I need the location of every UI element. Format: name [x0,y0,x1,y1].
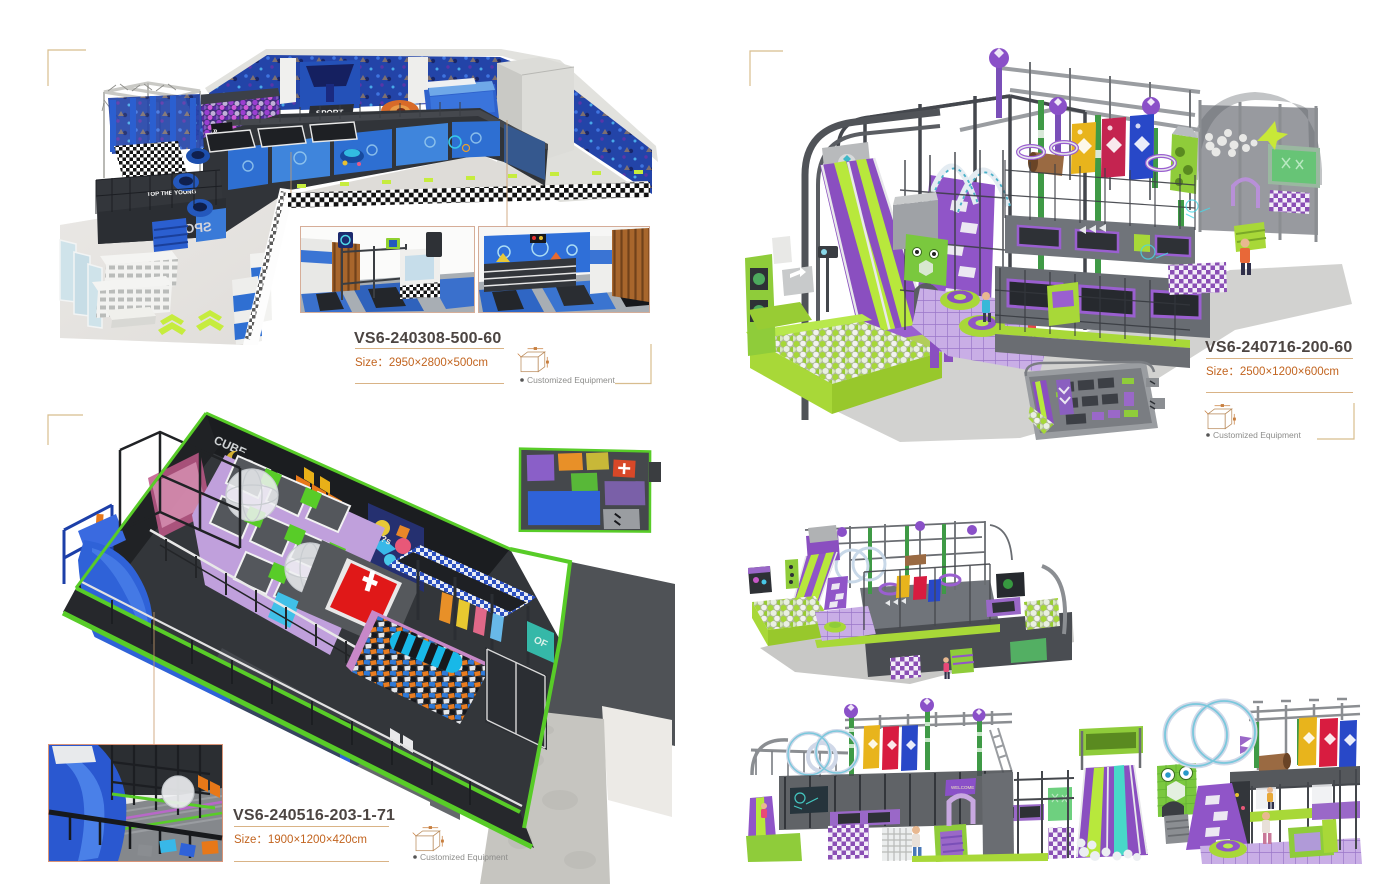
svg-text:Customized Equipment: Customized Equipment [420,852,509,862]
svg-text:VS6-240516-203-1-71: VS6-240516-203-1-71 [233,807,395,824]
svg-text:Customized Equipment: Customized Equipment [1213,430,1302,440]
svg-text:WELCOME: WELCOME [951,785,974,790]
svg-text:Size：2500×1200×600cm: Size：2500×1200×600cm [1206,366,1339,378]
svg-text:VS6-240308-500-60: VS6-240308-500-60 [354,330,502,347]
svg-text:Customized Equipment: Customized Equipment [527,375,616,385]
svg-text:Size：2950×2800×500cm: Size：2950×2800×500cm [355,357,488,369]
svg-text:Size：1900×1200×420cm: Size：1900×1200×420cm [234,834,367,846]
svg-text:VS6-240716-200-60: VS6-240716-200-60 [1205,339,1353,356]
